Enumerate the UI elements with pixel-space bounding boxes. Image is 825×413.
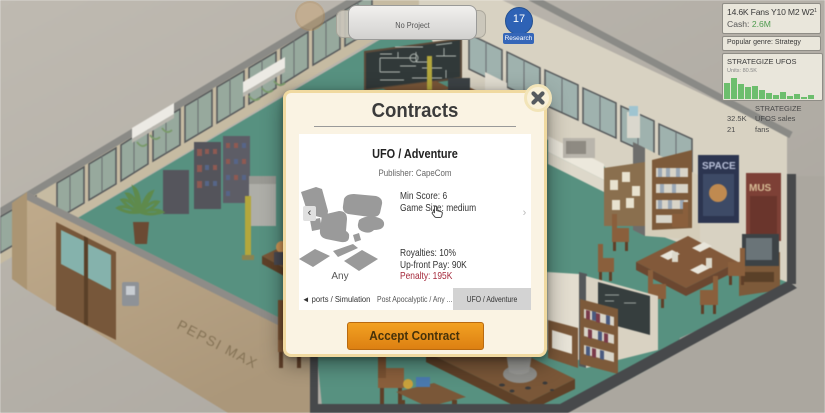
svg-text:MUS: MUS — [749, 183, 772, 194]
svg-text:SPACE: SPACE — [702, 161, 736, 172]
